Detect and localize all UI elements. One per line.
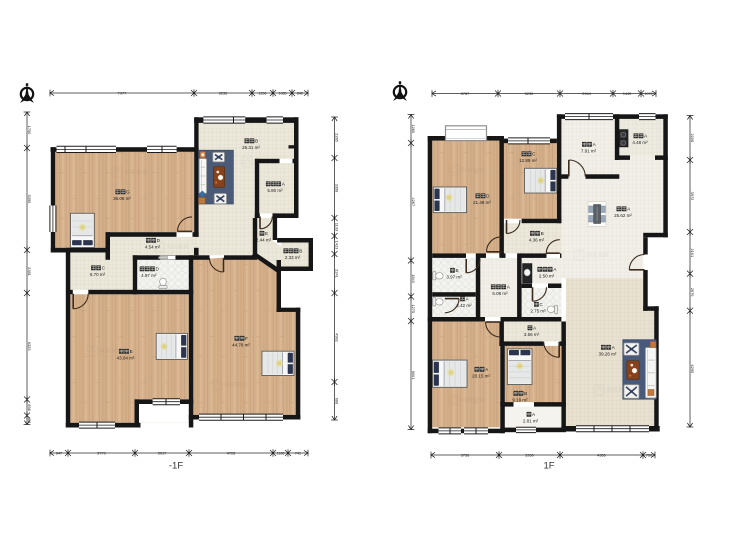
svg-text:21.48 m²: 21.48 m² [473,200,491,205]
svg-text:1443: 1443 [623,92,631,96]
svg-text:4.36 m²: 4.36 m² [529,238,545,243]
svg-text:3787: 3787 [461,91,470,96]
svg-text:E: E [265,231,268,236]
svg-text:7.91 m²: 7.91 m² [581,149,597,154]
svg-text:2285: 2285 [335,133,340,142]
svg-text:842: 842 [297,91,303,95]
svg-text:6325: 6325 [27,342,32,351]
svg-text:5395: 5395 [27,195,32,204]
svg-text:7977: 7977 [118,90,127,95]
svg-text:1750: 1750 [27,126,32,135]
svg-text:1280: 1280 [411,124,416,133]
svg-text:2.42 m²: 2.42 m² [456,303,472,308]
svg-text:3972: 3972 [690,192,695,201]
svg-text:3736: 3736 [461,452,470,457]
svg-text:1072: 1072 [644,92,652,96]
svg-text:9.19 m²: 9.19 m² [512,398,528,403]
svg-text:-1F: -1F [169,461,183,472]
svg-text:688: 688 [335,398,340,405]
svg-text:2.44 m²: 2.44 m² [256,238,272,243]
svg-text:39.26 m²: 39.26 m² [599,352,617,357]
svg-text:3017: 3017 [158,450,167,455]
svg-text:3230: 3230 [525,91,534,96]
svg-text:6295: 6295 [690,365,695,374]
svg-text:1275: 1275 [411,304,416,313]
svg-text:4.97 m²: 4.97 m² [141,273,157,278]
svg-text:B: B [541,231,544,236]
svg-text:6.08 m²: 6.08 m² [492,291,508,296]
svg-text:F: F [245,336,248,341]
svg-text:2.75 m²: 2.75 m² [530,309,546,314]
svg-text:3779: 3779 [97,450,106,455]
svg-text:G: G [126,190,130,195]
svg-text:3260: 3260 [525,452,534,457]
svg-text:B: B [524,391,527,396]
svg-text:E: E [130,349,133,354]
svg-text:B: B [456,268,459,273]
svg-text:4287: 4287 [411,197,416,206]
svg-text:3.56 m²: 3.56 m² [524,332,540,337]
svg-text:6.70 m²: 6.70 m² [90,272,106,277]
svg-text:3236: 3236 [219,90,228,95]
svg-text:1423: 1423 [335,241,340,250]
svg-text:1085: 1085 [278,91,286,95]
svg-text:741: 741 [295,451,301,455]
svg-text:1F: 1F [543,461,554,472]
svg-text:20.15 m²: 20.15 m² [472,374,490,379]
svg-text:4.54 m²: 4.54 m² [145,245,161,250]
svg-text:B: B [299,249,302,254]
svg-text:2161: 2161 [690,248,695,257]
svg-text:2875: 2875 [690,288,695,297]
svg-text:4.48 m²: 4.48 m² [632,140,648,145]
svg-text:44.78 m²: 44.78 m² [232,343,250,348]
svg-text:1156: 1156 [259,91,267,95]
svg-text:1133: 1133 [335,223,340,231]
svg-text:1186: 1186 [277,451,285,455]
svg-text:2.81 m²: 2.81 m² [523,419,539,424]
svg-text:4365: 4365 [597,452,606,457]
svg-text:3358: 3358 [335,184,340,193]
svg-text:750: 750 [646,453,652,457]
svg-text:1843: 1843 [411,274,416,283]
svg-text:3.97 m²: 3.97 m² [446,275,462,280]
svg-text:847: 847 [56,451,62,455]
svg-text:2241: 2241 [335,269,340,278]
svg-text:2.50 m²: 2.50 m² [539,274,555,279]
svg-text:5.80 m²: 5.80 m² [267,188,283,193]
svg-text:2944: 2944 [582,91,591,96]
svg-text:26.31 m²: 26.31 m² [242,145,260,150]
svg-text:488: 488 [27,417,32,424]
svg-text:B: B [255,139,258,144]
svg-text:2.33 m²: 2.33 m² [285,255,301,260]
svg-text:2381: 2381 [27,267,32,276]
svg-text:25.62 m²: 25.62 m² [614,213,632,218]
svg-text:43.04 m²: 43.04 m² [117,356,135,361]
svg-text:6001: 6001 [411,371,416,380]
svg-text:2208: 2208 [690,133,695,142]
svg-text:4728: 4728 [227,450,236,455]
svg-text:898: 898 [27,404,32,411]
svg-text:36.06 m²: 36.06 m² [113,196,131,201]
svg-text:4992: 4992 [335,333,340,342]
svg-text:12.89 m²: 12.89 m² [519,158,537,163]
